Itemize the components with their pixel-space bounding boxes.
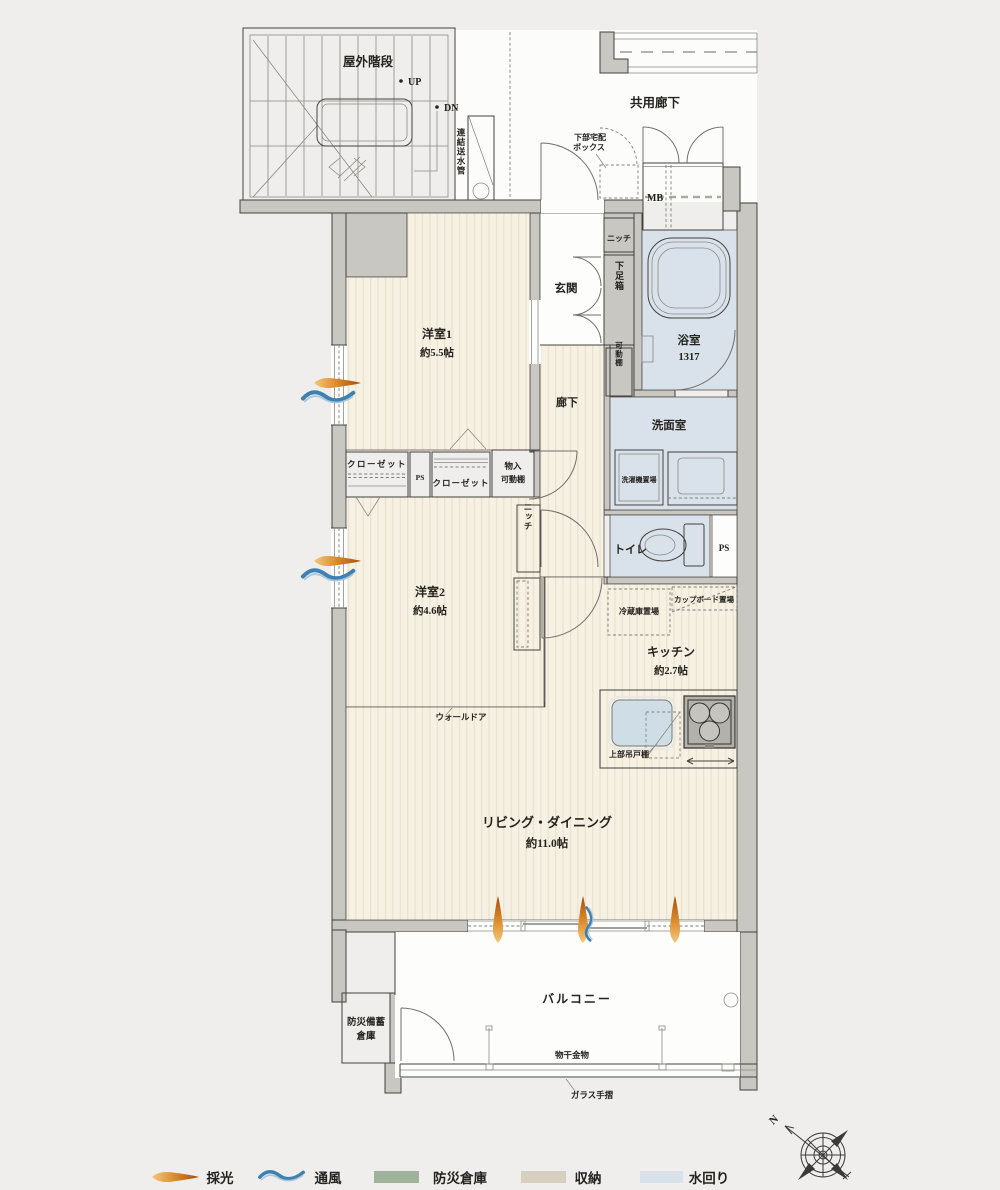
legend: 採光 通風 防災倉庫 収納 水回り: [152, 1170, 729, 1186]
dn-label: DN: [444, 103, 459, 114]
living-dining-label: リビング・ダイニング: [482, 815, 612, 830]
balcony: 防災備蓄 倉庫 バルコニー 物干金物 ガラス手摺: [342, 932, 757, 1100]
movable-shelf-label: 可動棚: [614, 341, 623, 367]
kitchen-sink: [612, 700, 672, 746]
bedroom2-label: 洋室2: [415, 584, 445, 599]
cupboard-label: カップボード置場: [674, 594, 734, 604]
bedroom2-window: [331, 528, 347, 608]
legend-daylight-label: 採光: [207, 1170, 234, 1186]
washer-label: 洗濯機置場: [622, 475, 657, 484]
legend-storage-label: 収納: [575, 1170, 602, 1186]
hallway-label: 廊下: [556, 395, 578, 409]
delivery-box-label-2: ボックス: [573, 142, 605, 152]
glass-rail-label: ガラス手摺: [571, 1090, 614, 1100]
washroom-label: 洗面室: [652, 418, 687, 432]
shoe-box-label: 下足箱: [614, 261, 625, 291]
disaster-storage-label-1: 防災備蓄: [347, 1016, 386, 1028]
niche-entrance-label: ニッチ: [607, 234, 631, 243]
legend-daylight-icon: [152, 1172, 199, 1182]
bath-size-label: 1317: [679, 352, 700, 363]
legend-storage-swatch: [521, 1171, 566, 1183]
closet-1-label: クローゼット: [347, 459, 407, 469]
common-corridor-label: 共用廊下: [630, 95, 681, 110]
upper-cabinet-label: 上部吊戸棚: [609, 749, 649, 759]
bedroom1-label: 洋室1: [422, 326, 452, 341]
legend-water-label: 水回り: [689, 1170, 730, 1186]
entrance-label: 玄関: [555, 281, 578, 295]
fridge-label: 冷蔵庫置場: [619, 606, 659, 616]
balcony-label: バルコニー: [542, 992, 612, 1006]
kitchen-label: キッチン: [647, 645, 695, 659]
legend-disaster-swatch: [374, 1171, 419, 1183]
disaster-storage: [342, 993, 390, 1063]
meter-box-label: MB: [647, 193, 663, 204]
hallway-floor: [540, 345, 604, 577]
common-corridor-area: 共用廊下: [455, 30, 757, 202]
standpipe-label: 連結送水管: [456, 127, 466, 175]
storage-shelf-label-1: 物入: [504, 461, 522, 471]
outdoor-stairs-label: 屋外階段: [343, 54, 394, 69]
bath-label: 浴室: [678, 333, 701, 347]
kitchen-size-label: 約2.7帖: [654, 664, 689, 677]
storage-shelf-label-2: 可動棚: [501, 474, 525, 484]
disaster-storage-label-2: 倉庫: [355, 1030, 376, 1042]
bedroom2-size-label: 約4.6帖: [413, 604, 448, 617]
compass-rose: N: [767, 1113, 851, 1180]
laundry-label: 物干金物: [555, 1050, 590, 1060]
legend-ventilation-label: 通風: [315, 1171, 342, 1186]
wall-door-label: ウォールドア: [435, 712, 487, 722]
legend-disaster-label: 防災倉庫: [433, 1170, 487, 1186]
floor-plan-page: 共用廊下 屋外階段 UP DN: [0, 0, 1000, 1190]
up-label: UP: [408, 77, 421, 88]
pipe-space-toilet-label: PS: [719, 543, 730, 553]
legend-ventilation-icon: [260, 1172, 303, 1181]
compass-north-label: N: [767, 1113, 781, 1127]
storage-shelf: [492, 450, 534, 497]
stair-landing: [317, 99, 412, 146]
living-dining-size-label: 約11.0帖: [526, 836, 569, 850]
outdoor-staircase: 屋外階段 UP DN: [243, 28, 459, 204]
pipe-space-closet-label: PS: [416, 473, 425, 482]
floor-plan-drawing: 共用廊下 屋外階段 UP DN: [0, 0, 1000, 1190]
delivery-box-label-1: 下部宅配: [574, 132, 606, 142]
niche-bedroom2-label: ニッチ: [523, 503, 533, 532]
legend-water-swatch: [640, 1171, 683, 1183]
closet-2-label: クローゼット: [432, 478, 489, 488]
toilet-label: トイレ: [614, 543, 647, 556]
bedroom1-size-label: 約5.5帖: [420, 346, 455, 359]
bedroom1-sliding-door: [529, 300, 541, 364]
washroom-floor: [610, 397, 737, 510]
